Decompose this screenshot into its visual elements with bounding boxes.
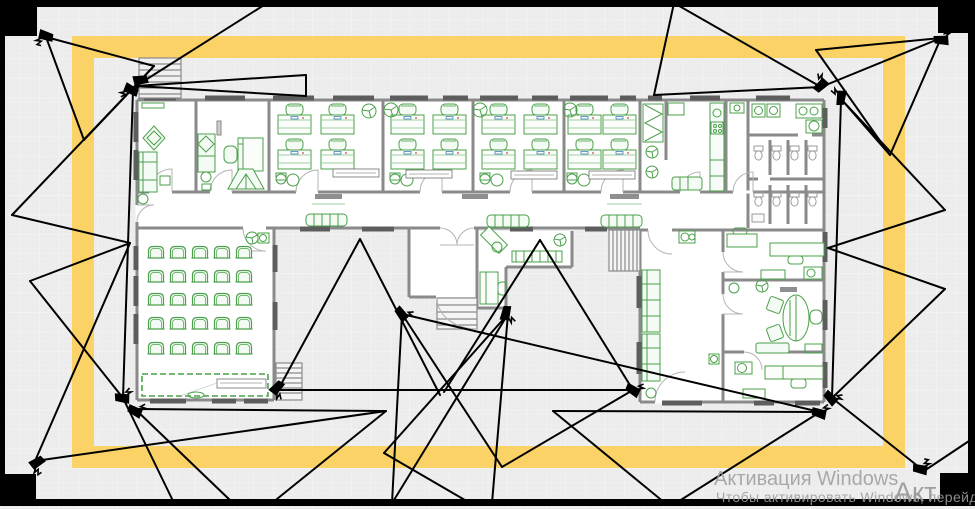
svg-text:Акт: Акт [894,477,937,507]
svg-text:Активация Windows: Активация Windows [714,468,898,490]
